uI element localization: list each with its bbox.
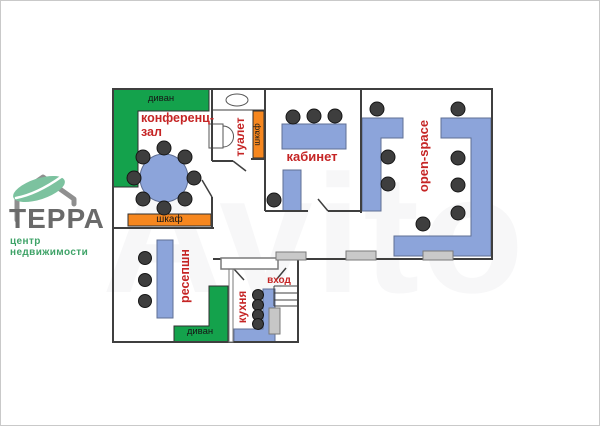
chair xyxy=(286,110,300,124)
kitchen-appliance xyxy=(269,308,280,334)
chair xyxy=(416,217,430,231)
room-label-reception: ресепшн xyxy=(178,240,194,312)
chair xyxy=(328,109,342,123)
wc-bowl-icon xyxy=(223,126,234,147)
logo-subtitle: центр недвижимости xyxy=(10,236,122,258)
chair xyxy=(451,151,465,165)
logo-title: ТЕРРА xyxy=(9,204,121,234)
chair xyxy=(136,192,150,206)
stool xyxy=(253,319,264,330)
floorplan-image: Avito xyxy=(0,0,600,426)
cabinet-side-desk xyxy=(283,170,301,211)
reception-desk xyxy=(157,240,173,318)
room-label-kitchen: кухня xyxy=(237,287,251,327)
chair xyxy=(178,150,192,164)
openspace-desk-left xyxy=(362,118,403,211)
chair xyxy=(451,206,465,220)
chair xyxy=(178,192,192,206)
door-cabinet xyxy=(318,199,328,211)
sofa-bottom-label: диван xyxy=(175,327,225,338)
wall-kitchen-divider xyxy=(229,269,233,342)
stool xyxy=(253,290,264,301)
room-label-openspace: open-space xyxy=(417,114,433,198)
stool xyxy=(253,300,264,311)
chair xyxy=(127,171,141,185)
chair xyxy=(370,102,384,116)
room-label-toilet: туалет xyxy=(234,109,248,165)
sofa-top-label: диван xyxy=(131,94,191,105)
window xyxy=(276,252,306,260)
chair xyxy=(139,274,152,287)
room-label-entrance: вход xyxy=(259,275,299,286)
chair xyxy=(187,171,201,185)
openspace-desk-right xyxy=(394,118,491,256)
chair xyxy=(157,201,171,215)
room-label-cabinet: кабинет xyxy=(277,150,347,165)
chair xyxy=(139,252,152,265)
door-conference xyxy=(202,180,212,197)
kitchen-stools xyxy=(253,290,264,330)
sink-icon xyxy=(226,94,248,106)
stairs-icon xyxy=(274,286,298,306)
chair xyxy=(451,102,465,116)
chair xyxy=(139,295,152,308)
chair xyxy=(381,177,395,191)
chair xyxy=(157,141,171,155)
agency-logo: ТЕРРА центр недвижимости xyxy=(7,168,123,256)
chair xyxy=(267,193,281,207)
chair xyxy=(451,178,465,192)
closet-toilet-label: шкаф xyxy=(253,112,264,158)
chair xyxy=(307,109,321,123)
reception-chairs xyxy=(139,252,152,308)
room-label-conference: конференц-зал xyxy=(141,111,217,139)
chair xyxy=(381,150,395,164)
chair xyxy=(136,150,150,164)
window xyxy=(423,251,453,260)
door-entry-left xyxy=(234,269,244,280)
cabinet-desk xyxy=(282,124,346,149)
entrance-canopy xyxy=(221,258,278,269)
closet-conference-label: шкаф xyxy=(129,214,210,225)
window xyxy=(346,251,376,260)
windows xyxy=(276,251,453,260)
